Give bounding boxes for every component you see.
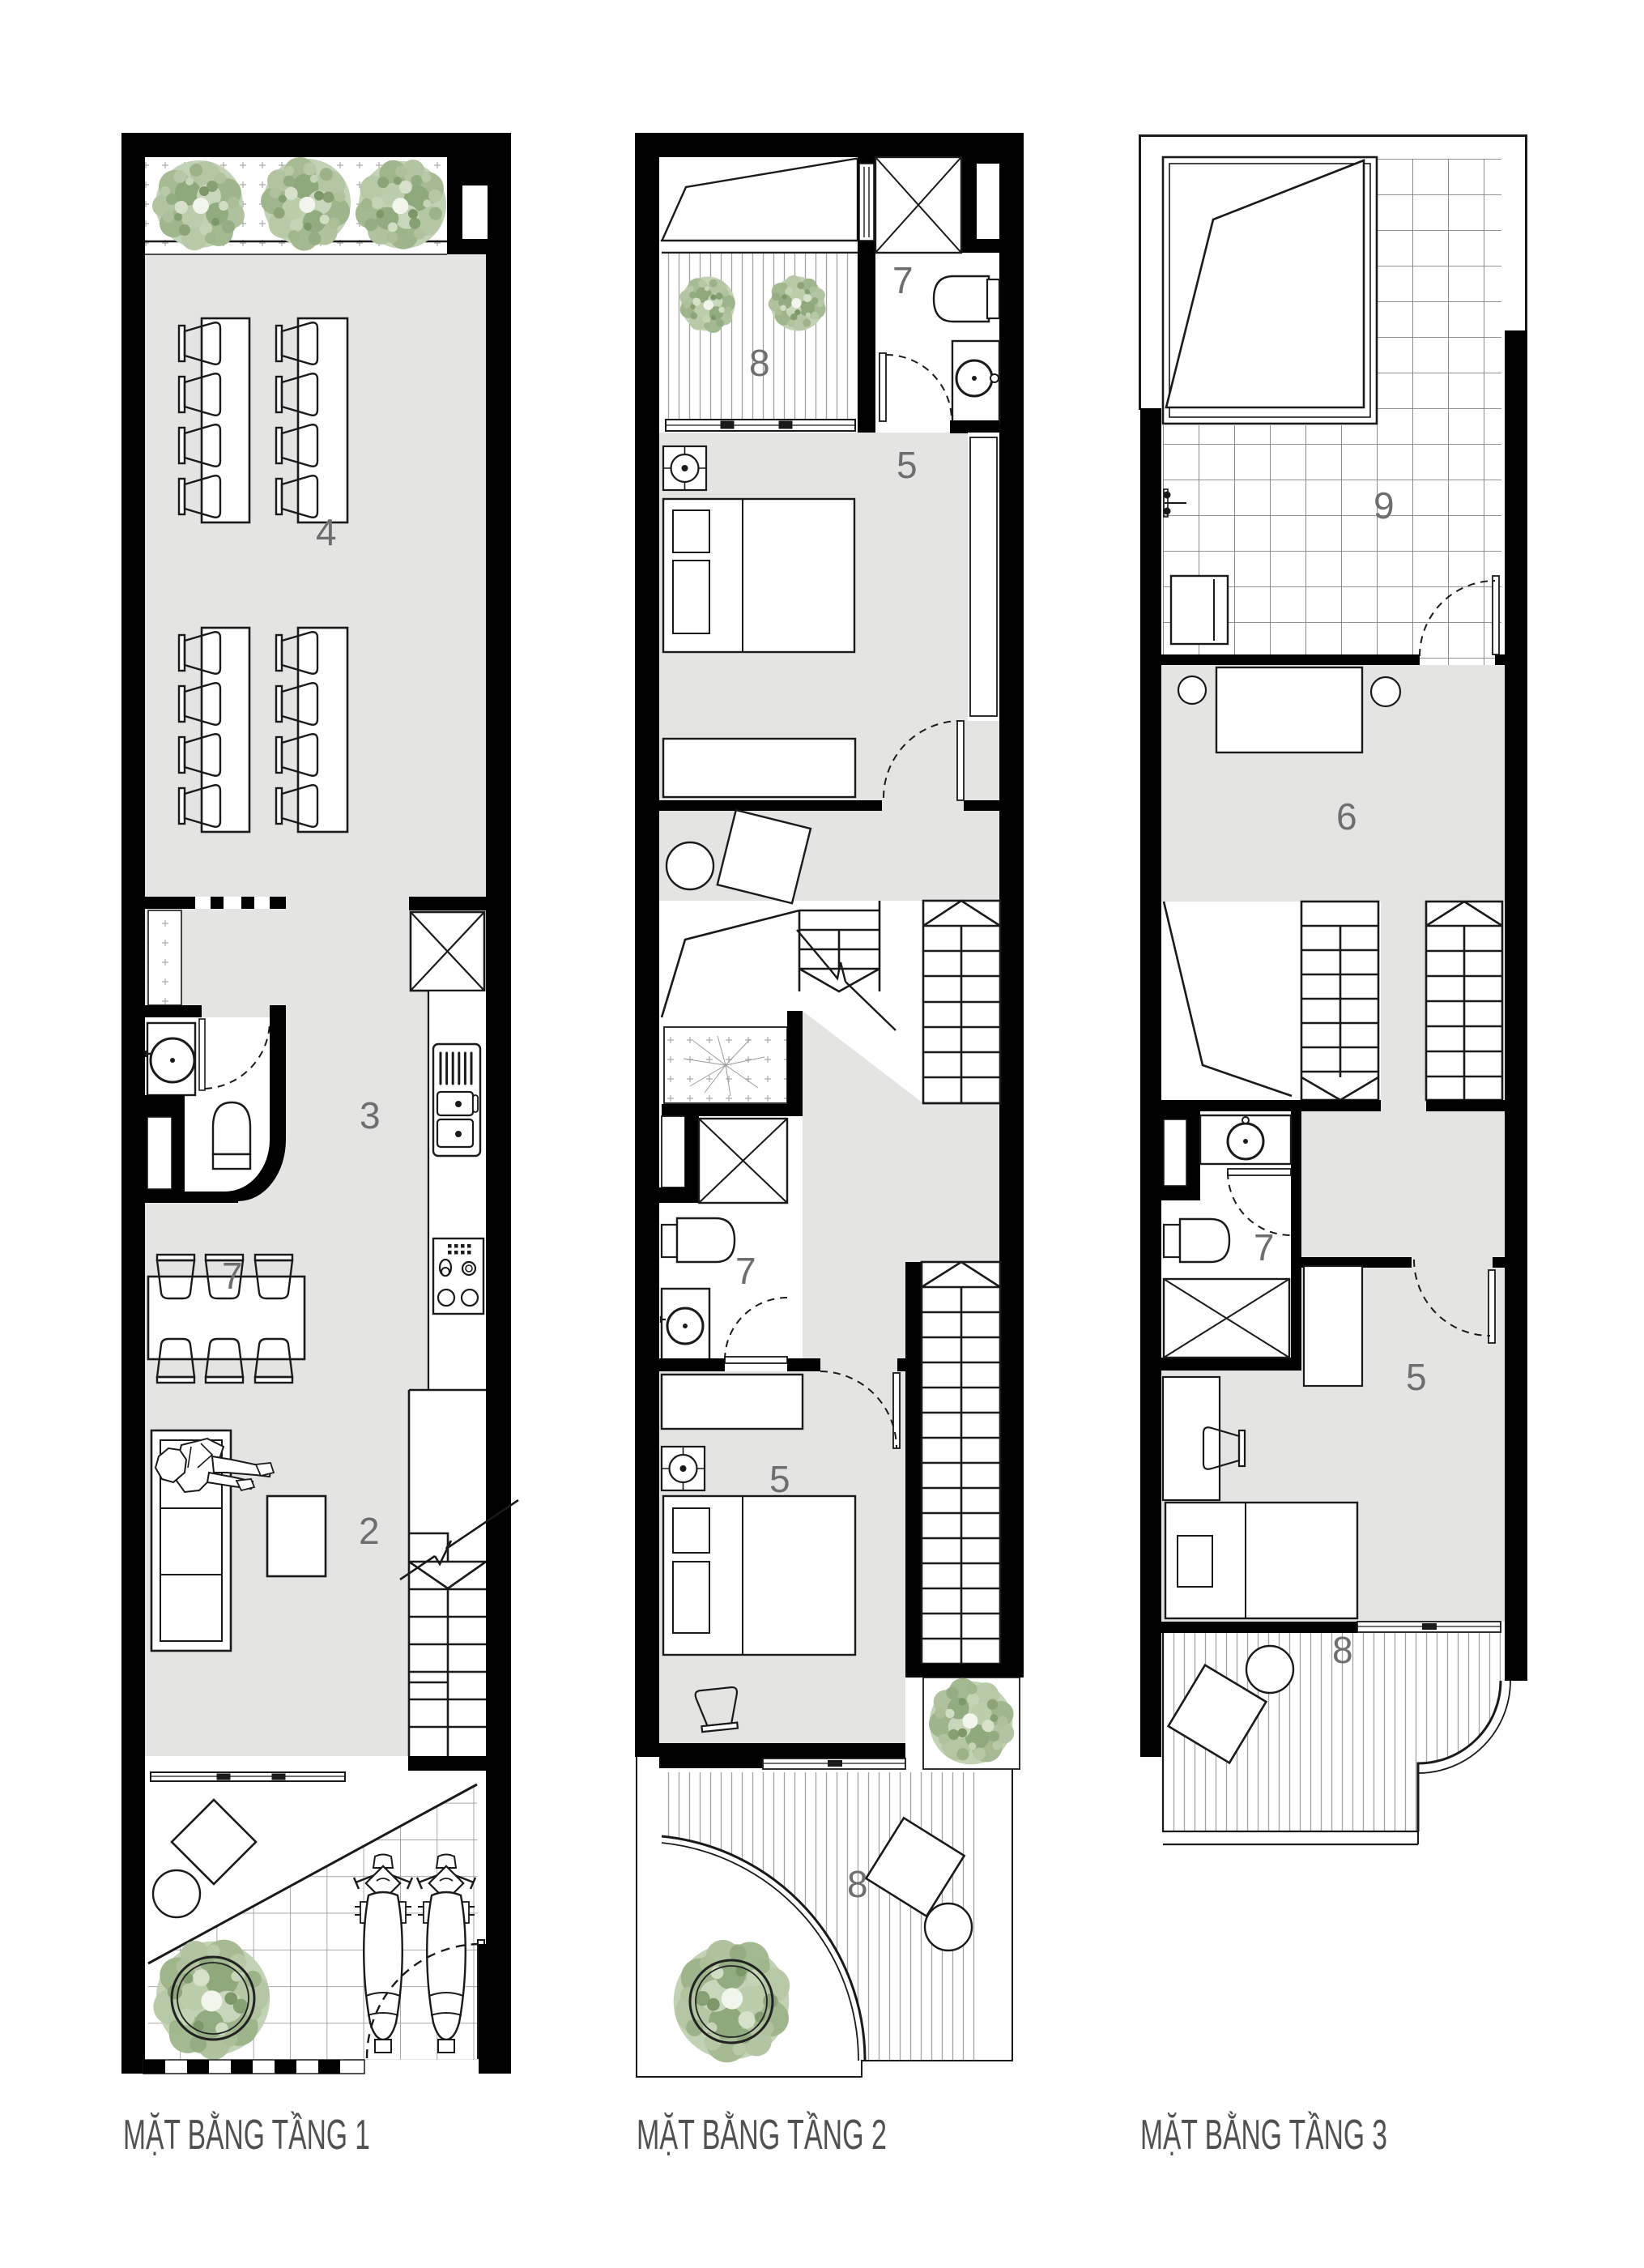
svg-text:8: 8 [749, 342, 770, 384]
svg-text:7: 7 [735, 1250, 756, 1292]
svg-text:8: 8 [1332, 1629, 1353, 1671]
svg-text:6: 6 [1336, 795, 1357, 838]
svg-text:MẶT BẰNG TẦNG 1: MẶT BẰNG TẦNG 1 [123, 2111, 370, 2159]
svg-text:7: 7 [892, 259, 914, 301]
svg-text:9: 9 [1374, 484, 1395, 526]
svg-text:2: 2 [359, 1510, 380, 1552]
svg-text:5: 5 [769, 1458, 790, 1500]
svg-text:MẶT BẰNG TẦNG 2: MẶT BẰNG TẦNG 2 [637, 2111, 887, 2159]
svg-text:8: 8 [847, 1863, 868, 1905]
svg-text:5: 5 [897, 444, 918, 486]
svg-text:4: 4 [316, 511, 337, 553]
svg-text:7: 7 [222, 1255, 243, 1297]
svg-text:3: 3 [360, 1094, 381, 1136]
svg-text:5: 5 [1406, 1356, 1427, 1398]
svg-text:MẶT BẰNG TẦNG 3: MẶT BẰNG TẦNG 3 [1140, 2111, 1387, 2159]
svg-text:7: 7 [1254, 1226, 1275, 1268]
